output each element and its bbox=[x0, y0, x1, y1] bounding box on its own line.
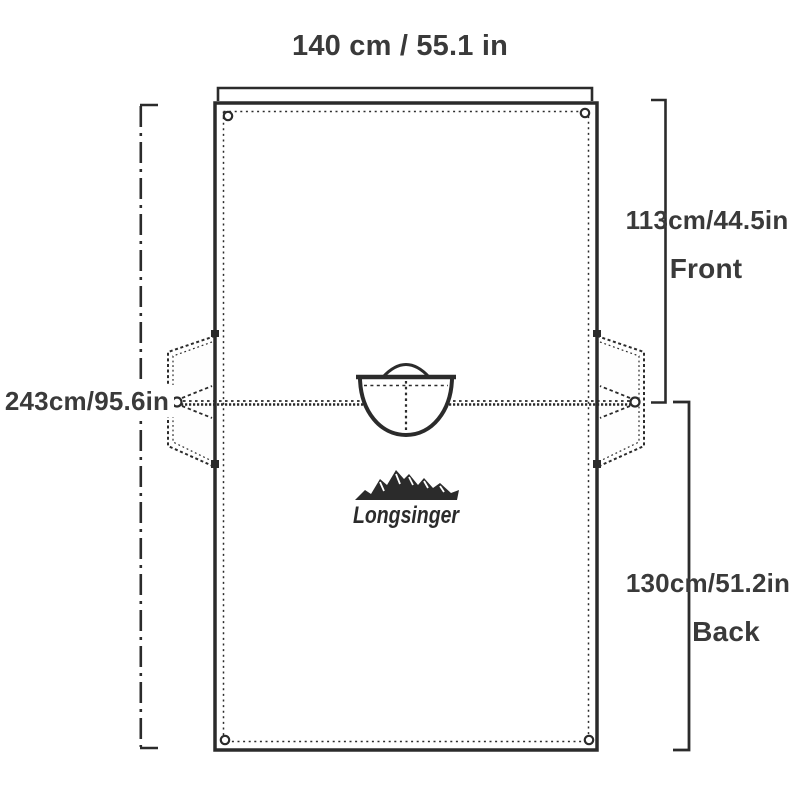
total-height-bracket-ticks bbox=[140, 105, 158, 748]
front-dimension-label: 113cm/44.5in bbox=[615, 204, 799, 236]
total-height-bracket bbox=[140, 105, 158, 748]
webbing-tab bbox=[593, 330, 601, 337]
webbing-tab bbox=[211, 460, 219, 468]
back-section-label: Back bbox=[680, 615, 772, 649]
grommet bbox=[224, 112, 232, 120]
front-section-label: Front bbox=[660, 252, 752, 286]
brand-wordmark: Longsinger bbox=[353, 502, 460, 529]
right-flap-grommet bbox=[631, 398, 640, 407]
top-width-bracket bbox=[218, 88, 592, 101]
grommet bbox=[581, 109, 589, 117]
webbing-tab bbox=[593, 460, 601, 468]
top-width-label: 140 cm / 55.1 in bbox=[230, 27, 570, 65]
product-dimension-diagram: Longsinger 140 cm / 55.1 in 113cm/44.5in… bbox=[0, 0, 800, 800]
grommet bbox=[221, 736, 229, 744]
back-dimension-label: 130cm/51.2in bbox=[616, 567, 800, 599]
grommet bbox=[585, 736, 593, 744]
total-height-label: 243cm/95.6in bbox=[0, 385, 174, 417]
webbing-tab bbox=[211, 330, 219, 337]
